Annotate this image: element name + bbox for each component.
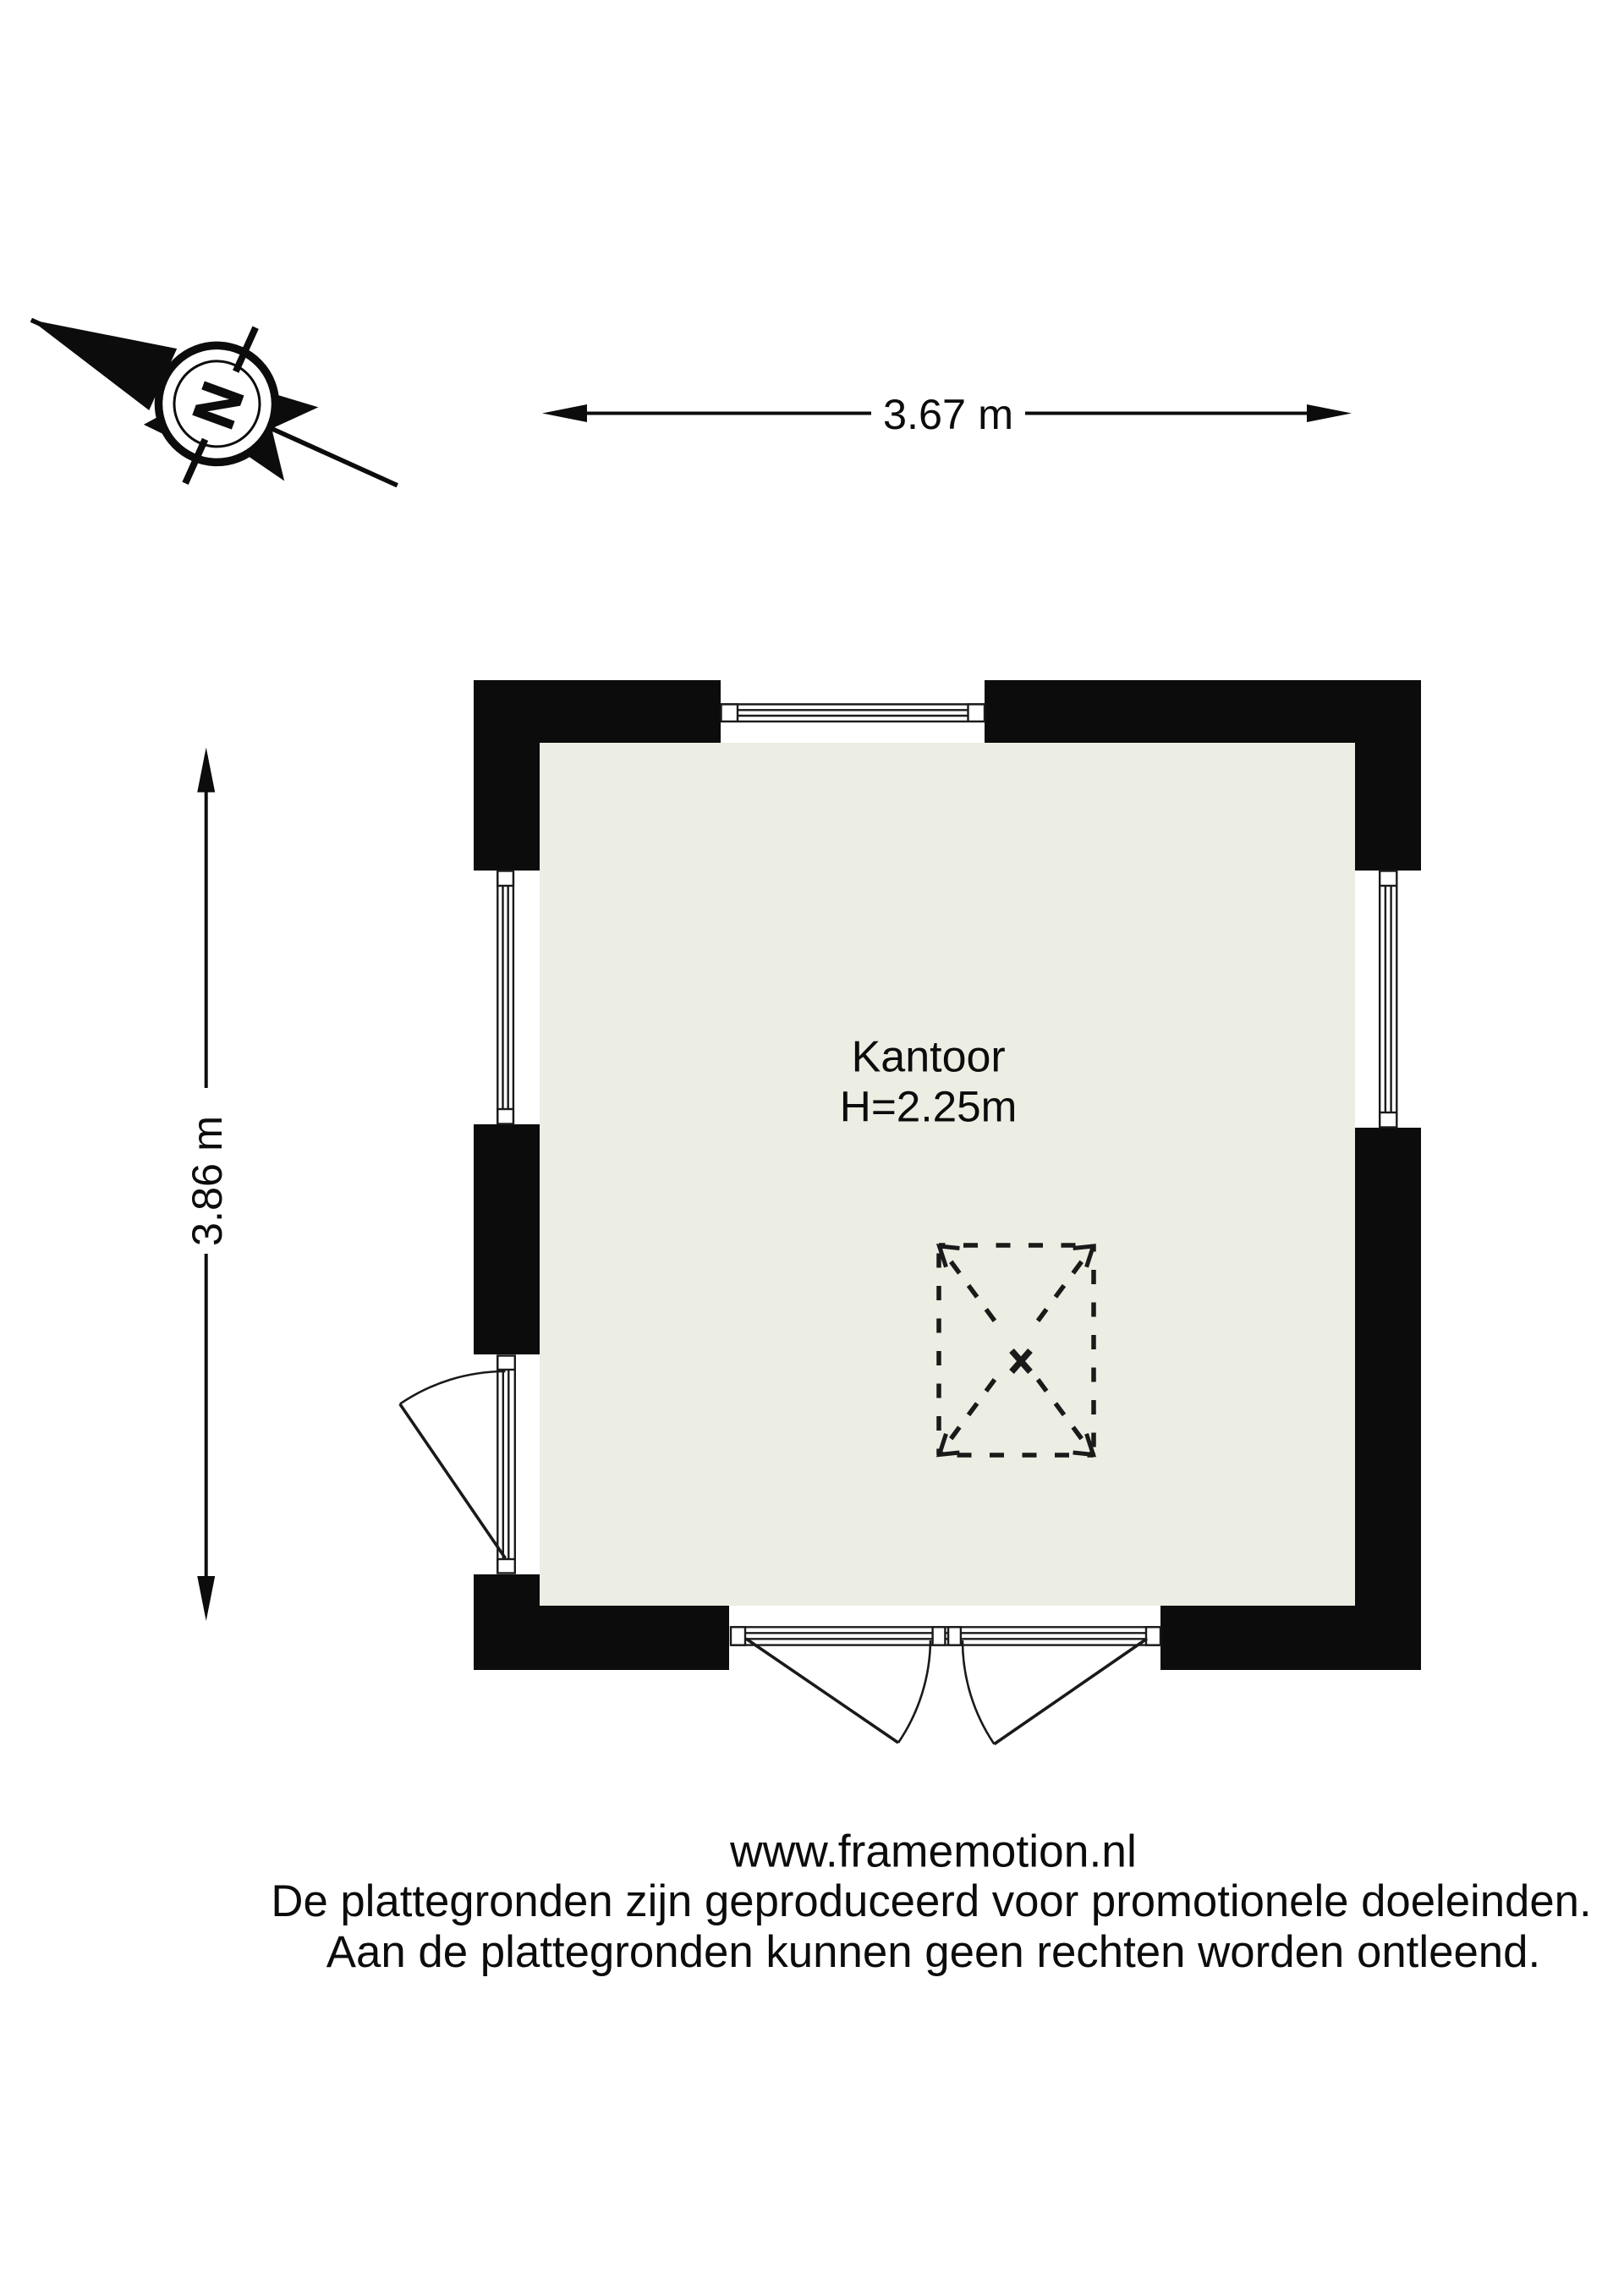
svg-text:Kantoor: Kantoor (852, 1032, 1006, 1081)
svg-text:www.framemotion.nl: www.framemotion.nl (729, 1827, 1137, 1877)
svg-text:3.67 m: 3.67 m (883, 390, 1013, 438)
svg-text:H=2.25m: H=2.25m (840, 1083, 1018, 1131)
svg-text:3.86 m: 3.86 m (183, 1116, 231, 1246)
svg-text:De plattegronden zijn geproduc: De plattegronden zijn geproduceerd voor … (271, 1876, 1591, 1926)
svg-text:Aan de plattegronden kunnen ge: Aan de plattegronden kunnen geen rechten… (326, 1927, 1540, 1977)
